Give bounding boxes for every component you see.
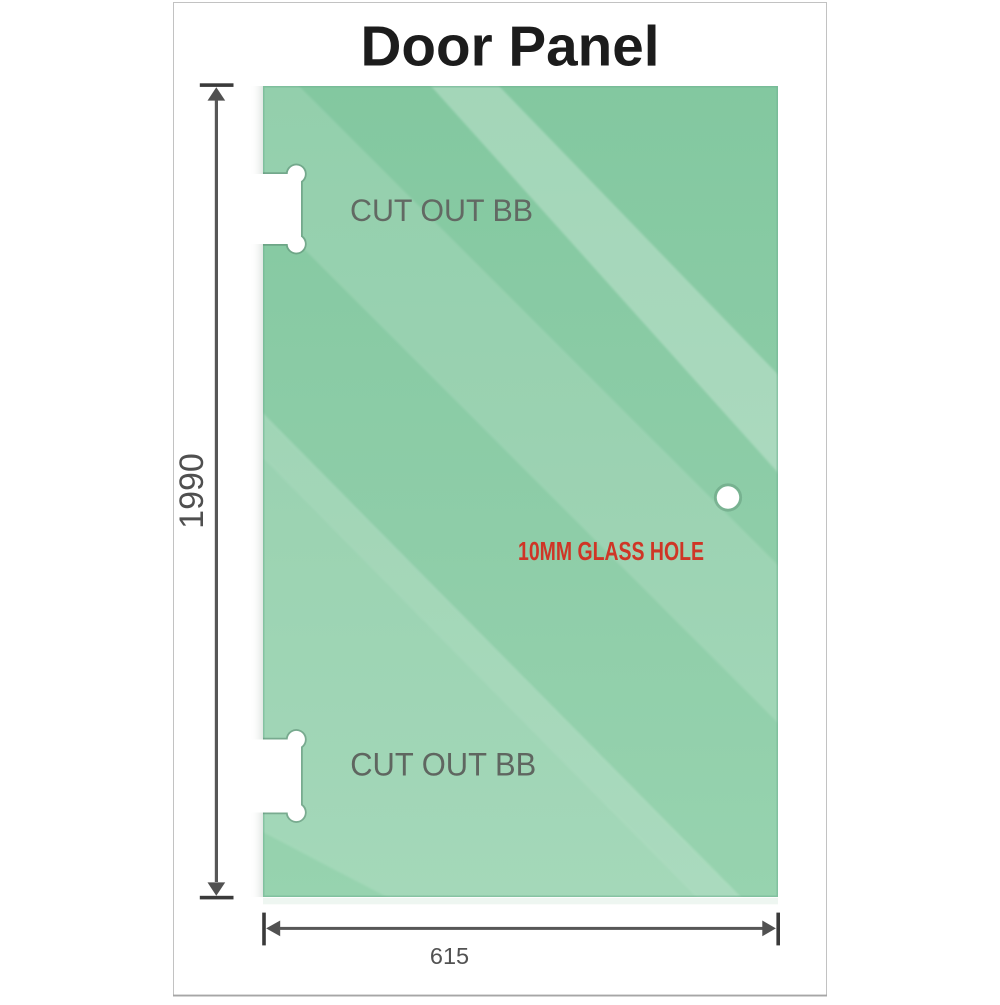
- svg-text:1990: 1990: [173, 453, 211, 529]
- svg-text:CUT OUT BB: CUT OUT BB: [350, 746, 536, 782]
- svg-text:10MM GLASS HOLE: 10MM GLASS HOLE: [518, 536, 704, 566]
- svg-text:CUT OUT BB: CUT OUT BB: [350, 192, 533, 228]
- svg-text:615: 615: [430, 943, 469, 969]
- svg-text:Door Panel: Door Panel: [361, 15, 660, 79]
